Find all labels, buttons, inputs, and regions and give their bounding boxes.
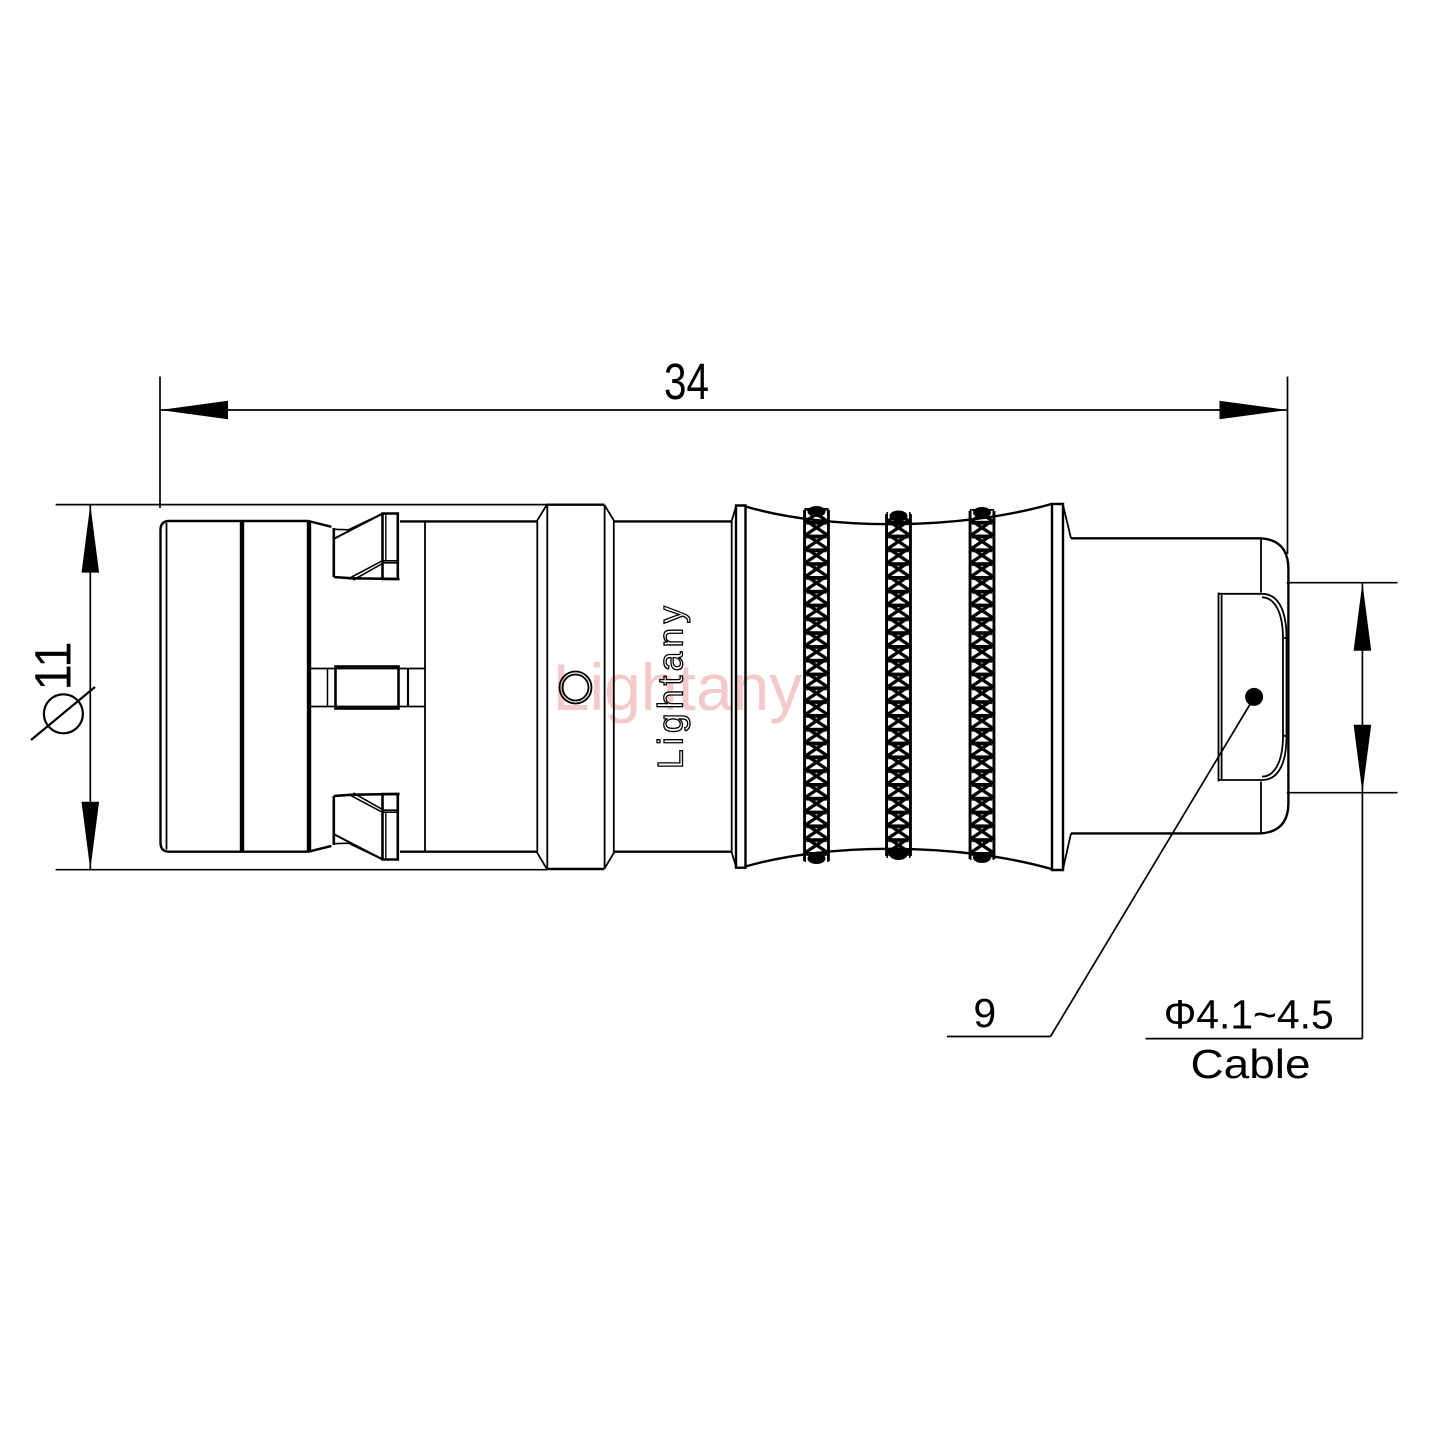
svg-text:Φ4.1~4.5: Φ4.1~4.5 — [1164, 991, 1334, 1037]
svg-text:9: 9 — [973, 990, 996, 1036]
svg-text:Cable: Cable — [1191, 1041, 1311, 1087]
svg-text:11: 11 — [25, 642, 82, 691]
svg-text:34: 34 — [664, 353, 709, 410]
